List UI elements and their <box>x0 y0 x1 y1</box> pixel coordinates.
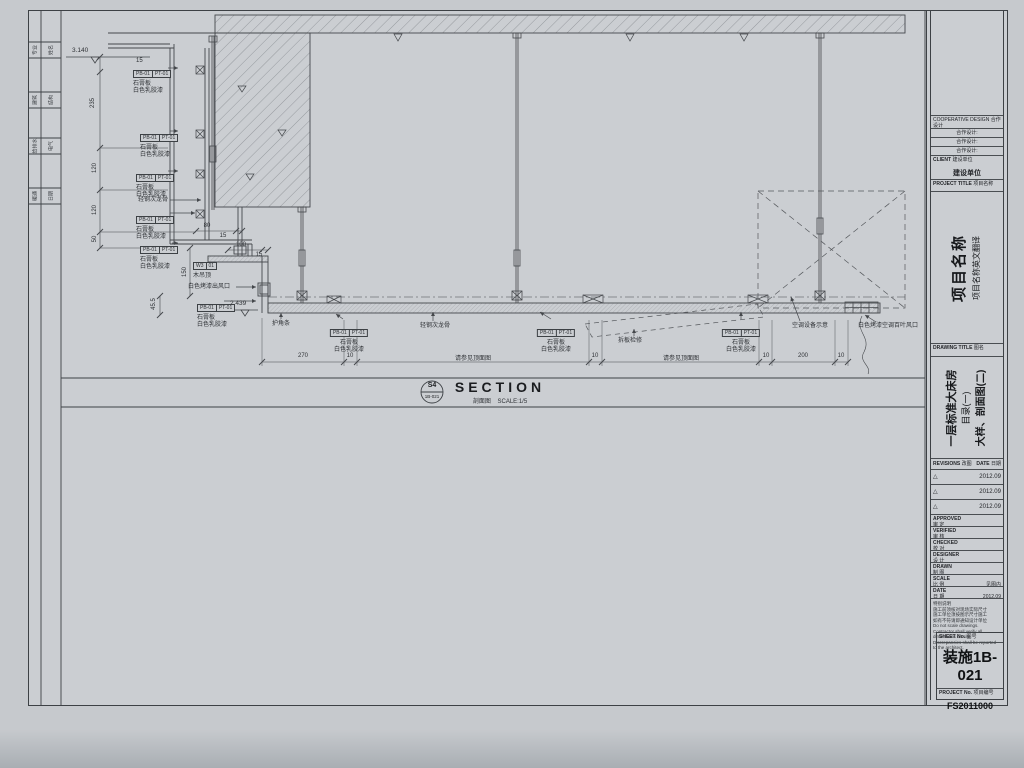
section-title: SECTION <box>455 379 545 395</box>
dim-120: 120 <box>92 205 98 215</box>
sign-row-checked: CHECKED 校 对 <box>931 539 1003 551</box>
dim-10: 10 <box>838 353 845 359</box>
project-title-header: PROJECT TITLE 项目名称 <box>931 180 1003 192</box>
material-tag: PB-01PT-01 石膏板白色乳胶漆 <box>136 166 174 199</box>
material-code: PT-01 <box>152 71 170 77</box>
section-bubble-sheet-ref: 1B-021 <box>425 394 440 399</box>
sheet-number-box: SHEET No. 图号 装施1B-021 PROJECT No. 项目编号 F… <box>936 632 1004 700</box>
project-number: FS2011000 <box>937 699 1003 711</box>
revision-mark: △ <box>933 489 938 496</box>
section-subtitle-cn: 剖面图 <box>473 399 491 405</box>
dim-270: 270 <box>298 353 308 359</box>
material-tag: PB-01PT-01 石膏板白色乳胶漆 <box>133 62 171 95</box>
section-bubble-number: S4 <box>428 382 437 389</box>
sign-row-date: DATE 日 期2012.09 <box>931 587 1003 599</box>
coop-row: 合作设计: <box>931 129 1003 138</box>
dim-45-5: 45.5 <box>151 298 157 310</box>
revision-mark: △ <box>933 504 938 511</box>
sign-row-verified: VERIFIED 审 核 <box>931 527 1003 539</box>
dim-80: 80 <box>204 223 211 229</box>
callout-keel: 轻钢次龙骨 <box>138 197 168 204</box>
material-tag: PB-01PT-01 石膏板白色乳胶漆 <box>140 238 178 271</box>
dim-ref-ceiling-plan: 请参见顶面图 <box>663 353 699 362</box>
section-scale: SCALE:1/5 <box>498 399 528 405</box>
project-name-cell: 项目名称 项目名称英文翻译 <box>931 192 1003 344</box>
sign-row-approved: APPROVED 审 定 <box>931 515 1003 527</box>
material-code-box: PB-01PT-01 <box>722 329 760 337</box>
callout-ac-louver: 白色烤漆空调百叶风口 <box>858 323 918 330</box>
material-tag: PB-01PT-01 石膏板白色乳胶漆 <box>136 208 174 241</box>
sheet-number: 装施1B-021 <box>937 643 1003 684</box>
material-desc: 石膏板白色乳胶漆 <box>140 257 178 271</box>
sign-row-drawn: DRAWN 制 图 <box>931 563 1003 575</box>
margin-cell-label: 建筑 <box>32 95 39 105</box>
client-header: CLIENT 建设单位 <box>931 156 1003 167</box>
material-desc: 石膏板白色乳胶漆 <box>537 340 575 354</box>
material-tag: PB-01PT-01 石膏板白色乳胶漆 <box>140 126 178 159</box>
w3-code-box: W301 <box>193 262 217 270</box>
material-code-box: PB-01PT-01 <box>197 304 235 312</box>
revision-row: △ 2012.09 <box>931 470 1003 485</box>
material-tag: PB-01PT-01 石膏板白色乳胶漆 <box>537 321 575 354</box>
dim-10: 10 <box>592 353 599 359</box>
revision-row: △ 2012.09 <box>931 500 1003 515</box>
dim-10: 10 <box>763 353 770 359</box>
sign-row-designer: DESIGNER 设 计 <box>931 551 1003 563</box>
material-desc: 石膏板白色乳胶漆 <box>133 81 171 95</box>
callout-keel-bottom: 轻钢次龙骨 <box>420 323 450 330</box>
material-tag: PB-01PT-01 石膏板白色乳胶漆 <box>330 321 368 354</box>
revision-mark: △ <box>933 474 938 481</box>
dim-15: 15 <box>220 233 227 239</box>
callout-ac-equipment: 空调设备示意 <box>792 323 828 330</box>
dim-50: 50 <box>92 236 98 243</box>
client-value: 建设单位 <box>931 167 1003 180</box>
margin-cell-label: 日期 <box>48 191 55 201</box>
material-code-box: PB-01PT-01 <box>136 174 174 182</box>
material-tag: PB-01PT-01 石膏板白色乳胶漆 <box>722 321 760 354</box>
revision-date: 2012.09 <box>979 474 1001 481</box>
coop-row: 合作设计: <box>931 138 1003 147</box>
callout-access-panel: 拆板检修 <box>618 338 642 345</box>
material-desc: 石膏板白色乳胶漆 <box>140 145 178 159</box>
revision-date: 2012.09 <box>979 504 1001 511</box>
project-name-en: 项目名称英文翻译 <box>971 234 982 302</box>
material-desc: 石膏板白色乳胶漆 <box>197 315 235 329</box>
w3-desc: 木吊顶 <box>193 273 217 280</box>
elevation-top: 3.140 <box>72 47 88 54</box>
dim-100: 100 <box>236 242 246 248</box>
margin-cell-label: 专业 <box>32 45 39 55</box>
material-code-box: PB-01PT-01 <box>136 216 174 224</box>
material-code-box: PB-01PT-01 <box>140 134 178 142</box>
dim-200: 200 <box>798 353 808 359</box>
revisions-header: REVISIONS 改图 DATE 日期 <box>931 459 1003 470</box>
margin-cell-label: 电气 <box>48 141 55 151</box>
margin-cell-label: 结构 <box>48 95 55 105</box>
drawing-title-cell: 一层标准大床房 目录(一) 大样、剖面图(二) <box>931 357 1003 459</box>
material-desc: 石膏板白色乳胶漆 <box>722 340 760 354</box>
project-no-header: PROJECT No. 项目编号 <box>937 688 1003 699</box>
margin-cell-label: 姓名 <box>48 45 55 55</box>
dim-15: 15 <box>136 58 143 65</box>
drawing-title-line: 一层标准大床房 <box>943 370 959 447</box>
callout-corner-bead: 护角条 <box>272 321 290 328</box>
dim-235: 235 <box>90 98 96 108</box>
drawing-title-line: 目录(一) <box>959 370 972 447</box>
material-code-box: PB-01PT-01 <box>140 246 178 254</box>
drawing-sheet <box>28 10 1008 706</box>
margin-cell-label: 给排水 <box>32 138 39 153</box>
material-code-box: PB-01PT-01 <box>133 70 171 78</box>
wood-ceiling-tag: W301 木吊顶 <box>193 254 217 280</box>
material-code: PB-01 <box>134 71 152 77</box>
dim-ref-ceiling-plan: 请参见顶面图 <box>455 353 491 362</box>
material-desc: 石膏板白色乳胶漆 <box>330 340 368 354</box>
margin-cell-label: 暖通 <box>32 191 39 201</box>
revision-row: △ 2012.09 <box>931 485 1003 500</box>
dim-15: 15 <box>256 252 263 258</box>
title-block-inner: COOPERATIVE DESIGN 合作设计 合作设计: 合作设计: 合作设计… <box>930 10 1004 700</box>
sheet-no-header: SHEET No. 图号 <box>937 633 1003 643</box>
coop-row: 合作设计: <box>931 147 1003 156</box>
revision-date: 2012.09 <box>979 489 1001 496</box>
drawing-title-line: 大样、剖面图(二) <box>972 370 987 447</box>
title-block: COOPERATIVE DESIGN 合作设计 合作设计: 合作设计: 合作设计… <box>926 10 1008 706</box>
project-name: 项目名称 <box>948 234 969 302</box>
drawing-title-header: DRAWING TITLE 图名 <box>931 344 1003 357</box>
dim-120: 120 <box>92 163 98 173</box>
sign-row-scale: SCALE 比 例见图内 <box>931 575 1003 587</box>
material-code-box: PB-01PT-01 <box>537 329 575 337</box>
material-tag: PB-01PT-01 石膏板白色乳胶漆 <box>197 296 235 329</box>
cad-viewer-canvas: 专业 姓名 建筑 结构 给排水 电气 暖通 日期 3.140 2.439 PB-… <box>0 0 1024 768</box>
dim-10: 10 <box>347 353 354 359</box>
dim-150: 150 <box>182 267 188 277</box>
callout-air-outlet: 白色烤漆出风口 <box>188 284 230 291</box>
cooperative-design-header: COOPERATIVE DESIGN 合作设计 <box>931 116 1003 129</box>
logo-cell <box>931 10 1003 116</box>
section-subtitle: 剖面图 SCALE:1/5 <box>473 396 527 405</box>
material-code-box: PB-01PT-01 <box>330 329 368 337</box>
